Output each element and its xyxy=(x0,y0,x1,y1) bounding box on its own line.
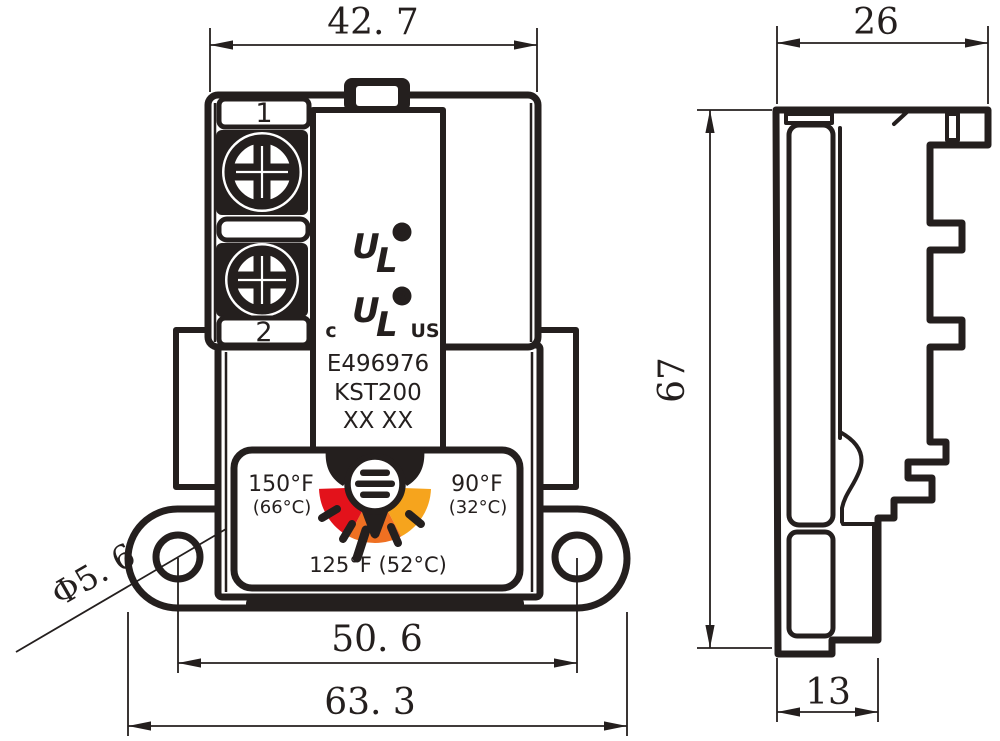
dial-label-125f-52c: 125°F (52°C) xyxy=(309,553,447,577)
terminal-screw-1 xyxy=(216,130,308,215)
cul-c-label: c xyxy=(325,320,336,342)
dim-26: 26 xyxy=(853,2,899,43)
dimension-height: 67 xyxy=(652,110,772,648)
dim-50-6: 50. 6 xyxy=(331,619,423,660)
side-slot-upper xyxy=(789,125,833,525)
dial-label-32c: (32°C) xyxy=(449,497,508,518)
side-slot-lower xyxy=(789,532,833,636)
dimension-foot-depth: 13 xyxy=(777,658,878,722)
dim-63-3: 63. 3 xyxy=(324,682,416,723)
terminal-screw-2 xyxy=(216,243,308,317)
registered-r-2: R xyxy=(397,290,406,304)
dim-13: 13 xyxy=(805,672,851,713)
ul-file-number: E496976 xyxy=(327,351,429,377)
top-tab-window xyxy=(356,86,398,106)
date-code: XX XX xyxy=(343,408,414,434)
body-bottom-lip xyxy=(246,598,524,611)
dim-phi-5-6: Φ5. 6 xyxy=(45,535,142,614)
technical-drawing-page: 1 2 xyxy=(0,0,1000,741)
dim-42-7: 42. 7 xyxy=(327,2,419,43)
terminal-2-label: 2 xyxy=(255,317,272,348)
ul-mark-l: L xyxy=(376,241,398,281)
dial-label-66c: (66°C) xyxy=(253,497,312,518)
model-number: KST200 xyxy=(334,380,422,406)
dial-label-90f: 90°F xyxy=(451,472,503,497)
terminal-block: 1 2 xyxy=(216,98,309,348)
dial-label-150f: 150°F xyxy=(248,472,314,497)
side-view xyxy=(776,110,988,654)
front-view: 1 2 xyxy=(128,78,627,611)
terminal-divider-plate xyxy=(219,219,308,240)
thermostat-technical-drawing: 1 2 xyxy=(0,0,1000,741)
cul-us-label: US xyxy=(410,320,439,342)
dimension-depth: 26 xyxy=(777,2,988,104)
dim-67: 67 xyxy=(652,357,693,403)
terminal-1-label: 1 xyxy=(255,98,272,129)
registered-r: R xyxy=(397,226,406,240)
knob-screw-slots xyxy=(355,470,395,499)
cul-mark-l: L xyxy=(376,305,398,345)
